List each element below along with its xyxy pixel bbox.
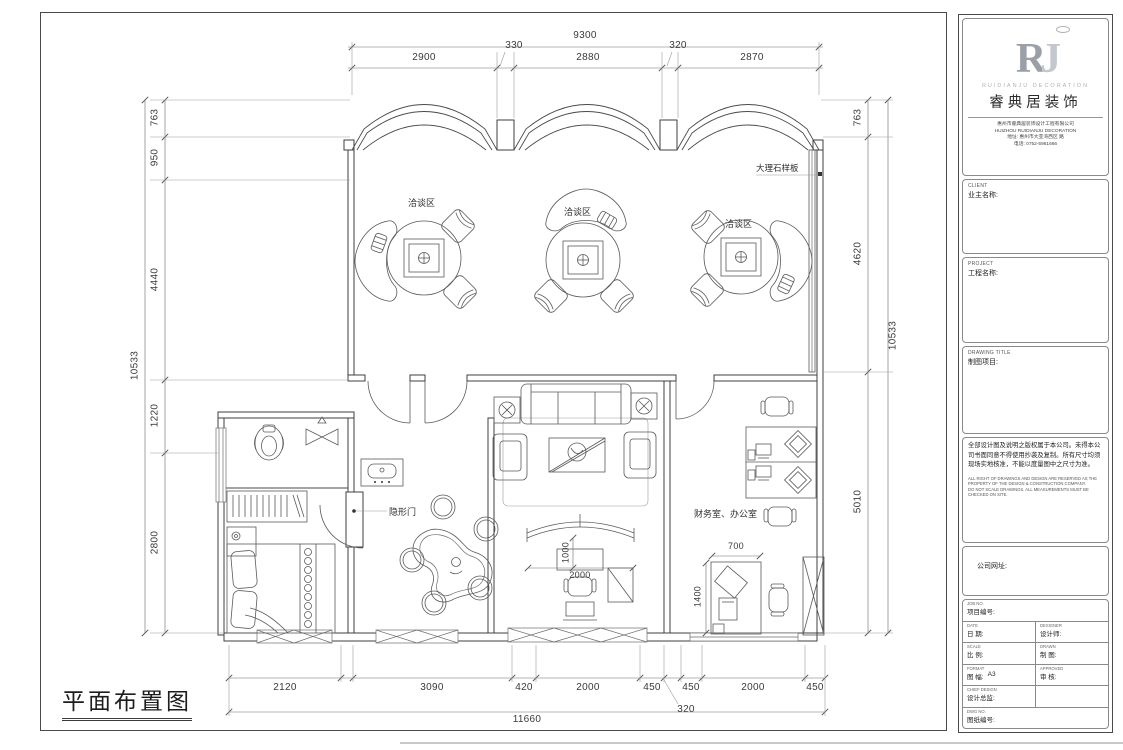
- dim-left-overall: 10533: [130, 344, 141, 388]
- field-approved: APPROVED审 核:: [1035, 665, 1108, 686]
- floor-plan-drawing: [0, 0, 1123, 750]
- dim-left-950: 950: [150, 136, 161, 180]
- field-job-no: JOB NO.项目编号:: [963, 600, 1108, 621]
- copyright-notice-block: 全部设计图及说明之版权属于本公司。未得本公司书面同意不得使用抄袭及复制。所有尺寸…: [962, 437, 1109, 543]
- field-chief-designer: CHIEF DESIGN设计总监:: [963, 686, 1035, 707]
- squat-toilet: [255, 425, 284, 460]
- arched-facade: [344, 105, 823, 151]
- window-tea-room: [376, 630, 458, 643]
- field-scale: SCALE比 例:: [963, 643, 1035, 664]
- dim-arch-2000: 2000: [558, 570, 602, 581]
- project-block: PROJECT 工程名称:: [962, 257, 1109, 343]
- dim-right-4620: 4620: [853, 232, 864, 276]
- dim-bottom-2000b: 2000: [731, 682, 775, 693]
- label-finance-office: 财务室、办公室: [694, 507, 757, 520]
- workstation-desks: [746, 427, 816, 498]
- dim-right-5010: 5010: [853, 480, 864, 524]
- dim-bottom-450c: 450: [793, 682, 837, 693]
- dim-left-1220: 1220: [150, 394, 161, 438]
- armchair-right: [624, 432, 656, 478]
- title-block: RJ RUIDIANJU DECORATION 睿典居装饰 惠州市睿典居装饰设计…: [958, 14, 1113, 733]
- window-bedroom: [257, 630, 332, 643]
- dim-bottom-2000a: 2000: [566, 682, 610, 693]
- field-date: DATE日 期:: [963, 622, 1035, 643]
- label-marble-board: 大理石样板: [756, 162, 799, 174]
- side-desk: [711, 562, 761, 634]
- rj-logo: RJ: [968, 37, 1103, 81]
- screenshot-root: { "plan": { "title": "平面布置图", "labels": …: [0, 0, 1123, 750]
- dim-left-763: 763: [150, 96, 161, 140]
- company-address: 惠州市睿典居装饰设计工程有限公司 HUIZHOU RUIDIANJU DECOR…: [968, 117, 1103, 148]
- coffee-table: [549, 438, 605, 472]
- bathroom-fixtures: [255, 425, 404, 486]
- dim-bottom-3090: 3090: [410, 682, 454, 693]
- label-negotiation-1: 洽谈区: [408, 196, 435, 209]
- vanity-basin: [361, 459, 403, 486]
- negotiation-table-1: [355, 208, 478, 311]
- drawing-title-block: DRAWING TITLE 制图项目:: [962, 346, 1109, 434]
- format-value: A3: [988, 671, 996, 681]
- sofa-set: [493, 384, 657, 506]
- company-logo-block: RJ RUIDIANJU DECORATION 睿典居装饰 惠州市睿典居装饰设计…: [962, 18, 1109, 176]
- dim-top-overall: 9300: [563, 30, 607, 41]
- dim-top-320: 320: [656, 40, 700, 51]
- dim-top-330: 330: [492, 40, 536, 51]
- field-drawn: DRAWN制 图:: [1035, 643, 1108, 664]
- label-negotiation-3: 洽谈区: [725, 217, 752, 230]
- label-negotiation-2: 洽谈区: [564, 205, 591, 218]
- next-sheet-edge: [400, 742, 1123, 744]
- armchair-left: [493, 434, 527, 480]
- fields-table: JOB NO.项目编号: DATE日 期: DESIGNER设计师: SCALE…: [962, 599, 1109, 729]
- client-block: CLIENT 业主名称:: [962, 179, 1109, 254]
- hidden-door: [320, 492, 387, 548]
- dim-bottom-2120: 2120: [263, 682, 307, 693]
- dim-right-763: 763: [853, 96, 864, 140]
- dim-bottom-overall: 11660: [505, 714, 549, 725]
- dim-top-2900: 2900: [402, 52, 446, 63]
- dim-top-2880: 2880: [566, 52, 610, 63]
- dim-desk-700: 700: [714, 541, 758, 552]
- dim-arch-1000: 1000: [561, 531, 572, 575]
- swing-door-symbol: [306, 417, 338, 445]
- field-empty: [1035, 686, 1108, 707]
- window-living: [508, 628, 647, 642]
- wardrobe: [227, 491, 307, 522]
- website-block: 公司网址:: [962, 546, 1109, 596]
- logo-lamp-icon: [1056, 26, 1070, 33]
- dim-left-2800: 2800: [150, 521, 161, 565]
- plan-title: 平面布置图: [62, 682, 192, 721]
- dim-bottom-450b: 450: [669, 682, 713, 693]
- washing-machine: [227, 527, 256, 556]
- label-hidden-door: 隐形门: [389, 505, 416, 518]
- bed: [227, 544, 335, 633]
- dim-bottom-420: 420: [502, 682, 546, 693]
- bedroom-furniture: [227, 491, 335, 633]
- dim-left-4440: 4440: [150, 258, 161, 302]
- doors: [306, 381, 714, 548]
- dim-top-2870: 2870: [730, 52, 774, 63]
- field-designer: DESIGNER设计师:: [1035, 622, 1108, 643]
- company-name-cn: 睿典居装饰: [968, 91, 1103, 112]
- dim-bottom-450a: 450: [630, 682, 674, 693]
- company-name-en: RUIDIANJU DECORATION: [968, 83, 1103, 89]
- field-dwg-no: DWG NO.图纸编号:: [963, 708, 1108, 729]
- dim-bottom-320-callout: 320: [664, 704, 708, 715]
- field-format: FORMAT图 幅:A3: [963, 665, 1035, 686]
- reception-arch: [527, 514, 634, 620]
- dim-right-overall: 10533: [888, 314, 899, 358]
- dim-desk-1400: 1400: [693, 575, 704, 619]
